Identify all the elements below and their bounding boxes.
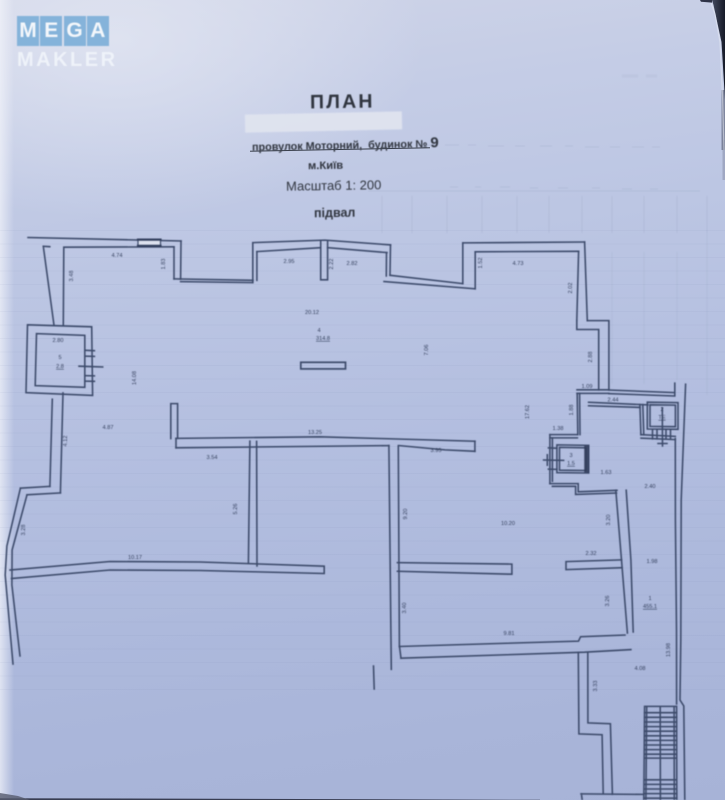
svg-text:4.74: 4.74 xyxy=(112,253,123,259)
svg-text:2.22: 2.22 xyxy=(329,259,335,270)
svg-text:2: 2 xyxy=(660,407,663,413)
svg-text:4.87: 4.87 xyxy=(103,425,114,431)
svg-text:455.1: 455.1 xyxy=(643,604,657,610)
svg-text:2.02: 2.02 xyxy=(568,283,574,294)
svg-text:314.8: 314.8 xyxy=(316,336,330,342)
svg-text:2.82: 2.82 xyxy=(347,261,358,267)
svg-text:3.20: 3.20 xyxy=(606,515,612,526)
svg-text:4.73: 4.73 xyxy=(513,261,524,267)
svg-text:2.8: 2.8 xyxy=(56,364,64,370)
svg-text:2.44: 2.44 xyxy=(608,398,619,404)
svg-text:3.95: 3.95 xyxy=(431,448,442,454)
svg-text:3: 3 xyxy=(569,453,572,459)
svg-text:7.06: 7.06 xyxy=(424,345,430,356)
svg-text:ТЕ: ТЕ xyxy=(658,415,665,421)
svg-text:1.83: 1.83 xyxy=(161,259,167,270)
svg-text:3.48: 3.48 xyxy=(69,271,75,282)
svg-text:4.08: 4.08 xyxy=(635,666,646,672)
svg-text:3.33: 3.33 xyxy=(593,681,599,692)
svg-text:1.88: 1.88 xyxy=(569,405,575,416)
svg-text:10.17: 10.17 xyxy=(128,555,142,561)
svg-text:2.95: 2.95 xyxy=(284,259,295,265)
svg-text:9.20: 9.20 xyxy=(403,509,409,520)
svg-text:1.52: 1.52 xyxy=(478,258,484,269)
svg-text:1.63: 1.63 xyxy=(601,470,612,476)
svg-text:1: 1 xyxy=(648,596,651,602)
svg-text:14.08: 14.08 xyxy=(132,371,138,385)
svg-text:13.98: 13.98 xyxy=(666,643,672,657)
svg-text:1.98: 1.98 xyxy=(647,559,658,565)
svg-text:4: 4 xyxy=(317,328,320,334)
svg-text:1.38: 1.38 xyxy=(553,426,564,432)
svg-text:20.12: 20.12 xyxy=(305,310,319,316)
svg-text:5.26: 5.26 xyxy=(233,504,239,515)
svg-text:2.80: 2.80 xyxy=(53,338,64,344)
svg-text:1.5: 1.5 xyxy=(567,461,575,467)
svg-text:10.20: 10.20 xyxy=(501,521,515,527)
svg-text:3.28: 3.28 xyxy=(21,525,27,536)
svg-text:13.25: 13.25 xyxy=(308,430,322,436)
svg-text:4.12: 4.12 xyxy=(63,436,69,447)
svg-text:3.54: 3.54 xyxy=(207,455,218,461)
svg-text:1.09: 1.09 xyxy=(582,384,593,390)
svg-text:2.32: 2.32 xyxy=(586,551,597,557)
svg-text:5: 5 xyxy=(58,355,61,361)
svg-text:3.26: 3.26 xyxy=(605,596,611,607)
svg-text:3.40: 3.40 xyxy=(402,603,408,614)
svg-text:17.62: 17.62 xyxy=(525,405,531,419)
svg-text:9.81: 9.81 xyxy=(504,631,515,637)
svg-text:2.88: 2.88 xyxy=(588,352,594,363)
svg-text:2.40: 2.40 xyxy=(645,484,656,490)
